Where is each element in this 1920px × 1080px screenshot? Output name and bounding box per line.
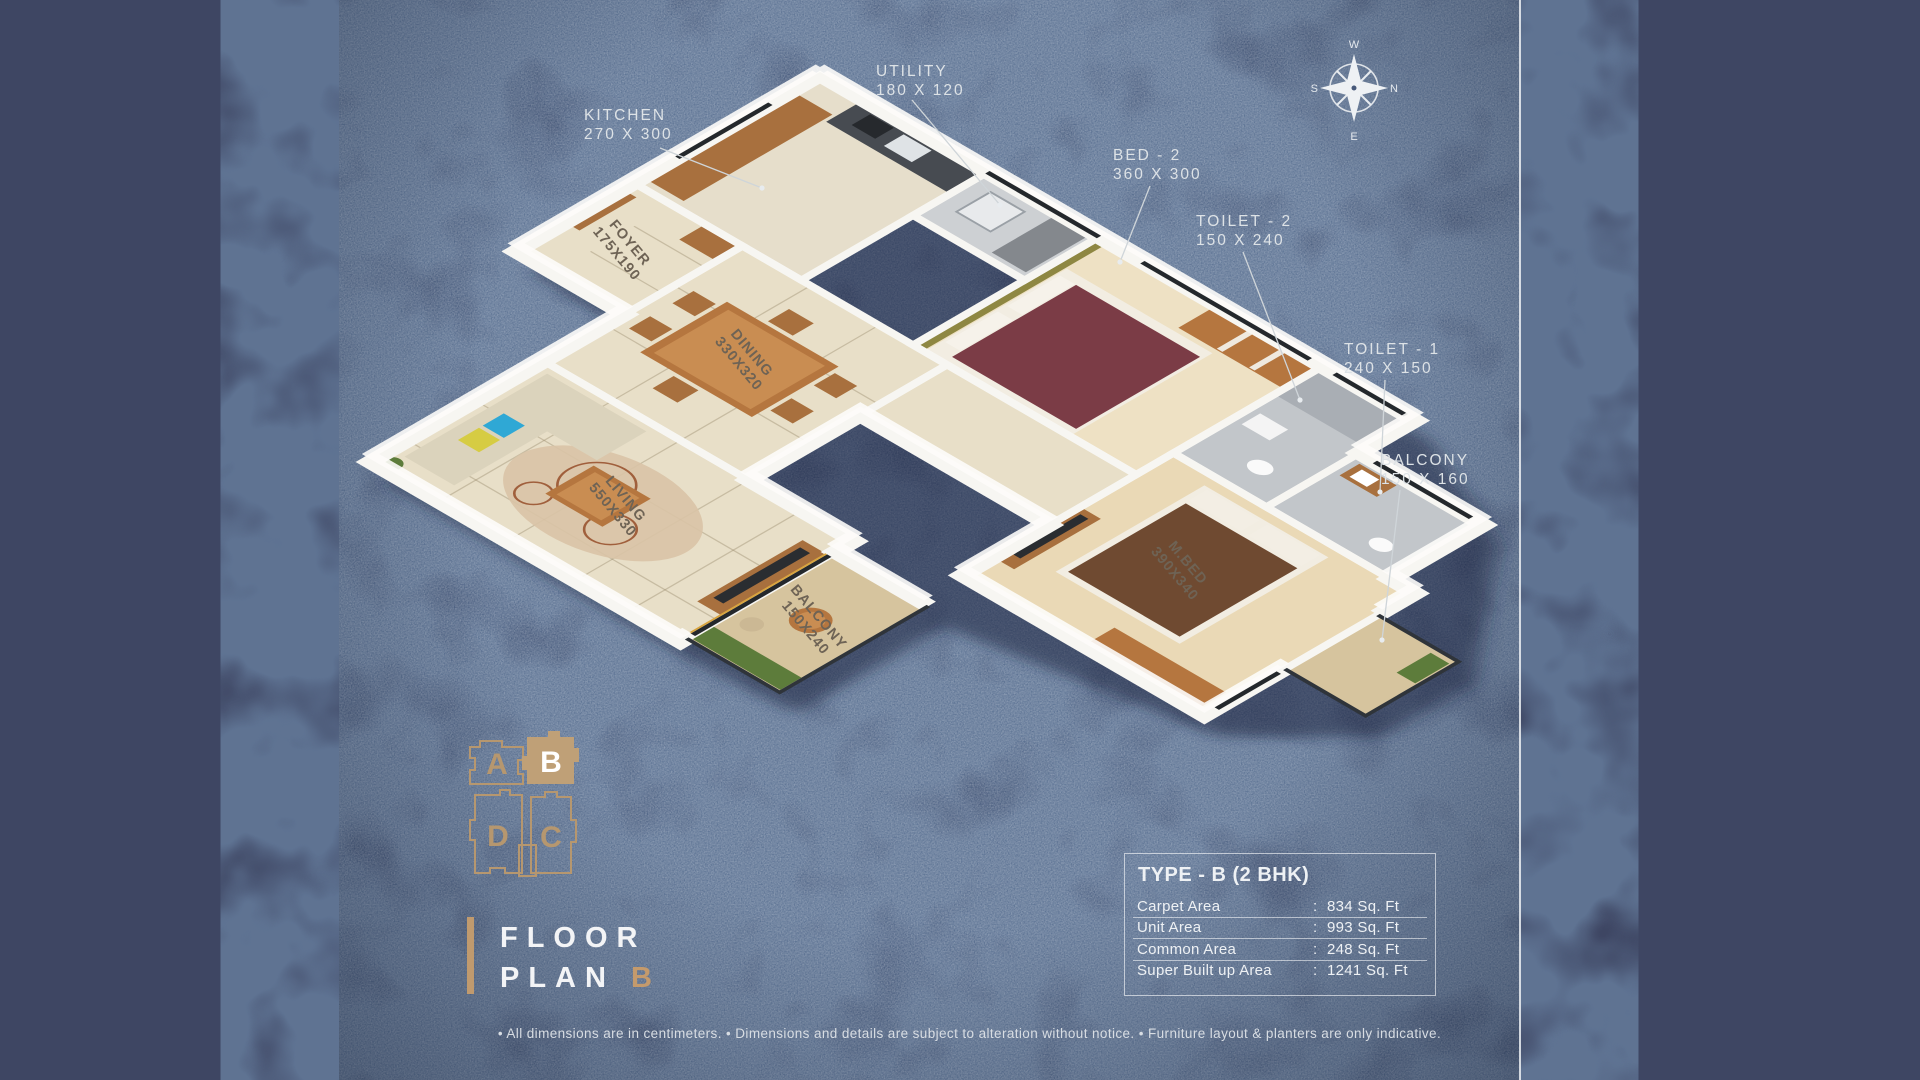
label-bed2-dims: 360 X 300 (1113, 165, 1202, 184)
compass-bottom: E (1350, 131, 1357, 143)
label-toilet2: TOILET - 2 150 X 240 (1196, 212, 1292, 250)
label-kitchen-name: KITCHEN (584, 106, 673, 125)
table-row: Common Area : 248 Sq. Ft (1133, 939, 1427, 961)
row-value: 834 Sq. Ft (1327, 898, 1423, 915)
compass-right: N (1390, 83, 1398, 95)
label-utility-name: UTILITY (876, 62, 965, 81)
table-rows: Carpet Area : 834 Sq. Ft Unit Area : 993… (1133, 896, 1427, 981)
table-row: Carpet Area : 834 Sq. Ft (1133, 896, 1427, 918)
row-label: Unit Area (1137, 919, 1313, 936)
label-bed2-name: BED - 2 (1113, 146, 1202, 165)
title-accent-bar (467, 917, 474, 994)
row-label: Carpet Area (1137, 898, 1313, 915)
row-label: Common Area (1137, 941, 1313, 958)
label-toilet1-dims: 240 X 150 (1344, 359, 1440, 378)
row-colon: : (1313, 962, 1327, 979)
key-plan: A B D C (470, 731, 579, 876)
row-value: 248 Sq. Ft (1327, 941, 1423, 958)
row-colon: : (1313, 919, 1327, 936)
row-label: Super Built up Area (1137, 962, 1313, 979)
compass-rose: W N E S (1311, 39, 1398, 143)
page-title: FLOOR PLANB (500, 918, 661, 998)
block-b-label: B (540, 746, 562, 779)
area-info-table: TYPE - B (2 BHK) Carpet Area : 834 Sq. F… (1124, 853, 1436, 996)
block-d-label: D (487, 820, 509, 853)
compass-top: W (1349, 39, 1360, 51)
label-kitchen-dims: 270 X 300 (584, 125, 673, 144)
label-utility-dims: 180 X 120 (876, 81, 965, 100)
title-line2: PLAN (500, 962, 615, 994)
row-colon: : (1313, 941, 1327, 958)
label-balcony1: BALCONY 150 X 160 (1381, 451, 1470, 489)
block-a-label: A (486, 748, 508, 781)
disclaimer-text: • All dimensions are in centimeters. • D… (379, 1026, 1560, 1041)
table-title: TYPE - B (2 BHK) (1138, 864, 1309, 887)
poster-canvas: W N E S A B D C KITCHEN 270 X 300 UTILIT… (0, 0, 1920, 1080)
title-unit: B (631, 962, 661, 994)
table-row: Super Built up Area : 1241 Sq. Ft (1133, 961, 1427, 982)
row-colon: : (1313, 898, 1327, 915)
label-utility: UTILITY 180 X 120 (876, 62, 965, 100)
label-balcony1-name: BALCONY (1381, 451, 1470, 470)
label-kitchen: KITCHEN 270 X 300 (584, 106, 673, 144)
label-bed2: BED - 2 360 X 300 (1113, 146, 1202, 184)
table-row: Unit Area : 993 Sq. Ft (1133, 918, 1427, 940)
block-c-label: C (540, 821, 562, 854)
label-toilet1: TOILET - 1 240 X 150 (1344, 340, 1440, 378)
compass-left: S (1311, 83, 1318, 95)
label-balcony1-dims: 150 X 160 (1381, 470, 1470, 489)
title-line1: FLOOR (500, 922, 647, 954)
row-value: 993 Sq. Ft (1327, 919, 1423, 936)
label-toilet1-name: TOILET - 1 (1344, 340, 1440, 359)
label-toilet2-dims: 150 X 240 (1196, 231, 1292, 250)
row-value: 1241 Sq. Ft (1327, 962, 1423, 979)
label-toilet2-name: TOILET - 2 (1196, 212, 1292, 231)
floor-plan-render: W N E S A B D C (0, 0, 1920, 1080)
